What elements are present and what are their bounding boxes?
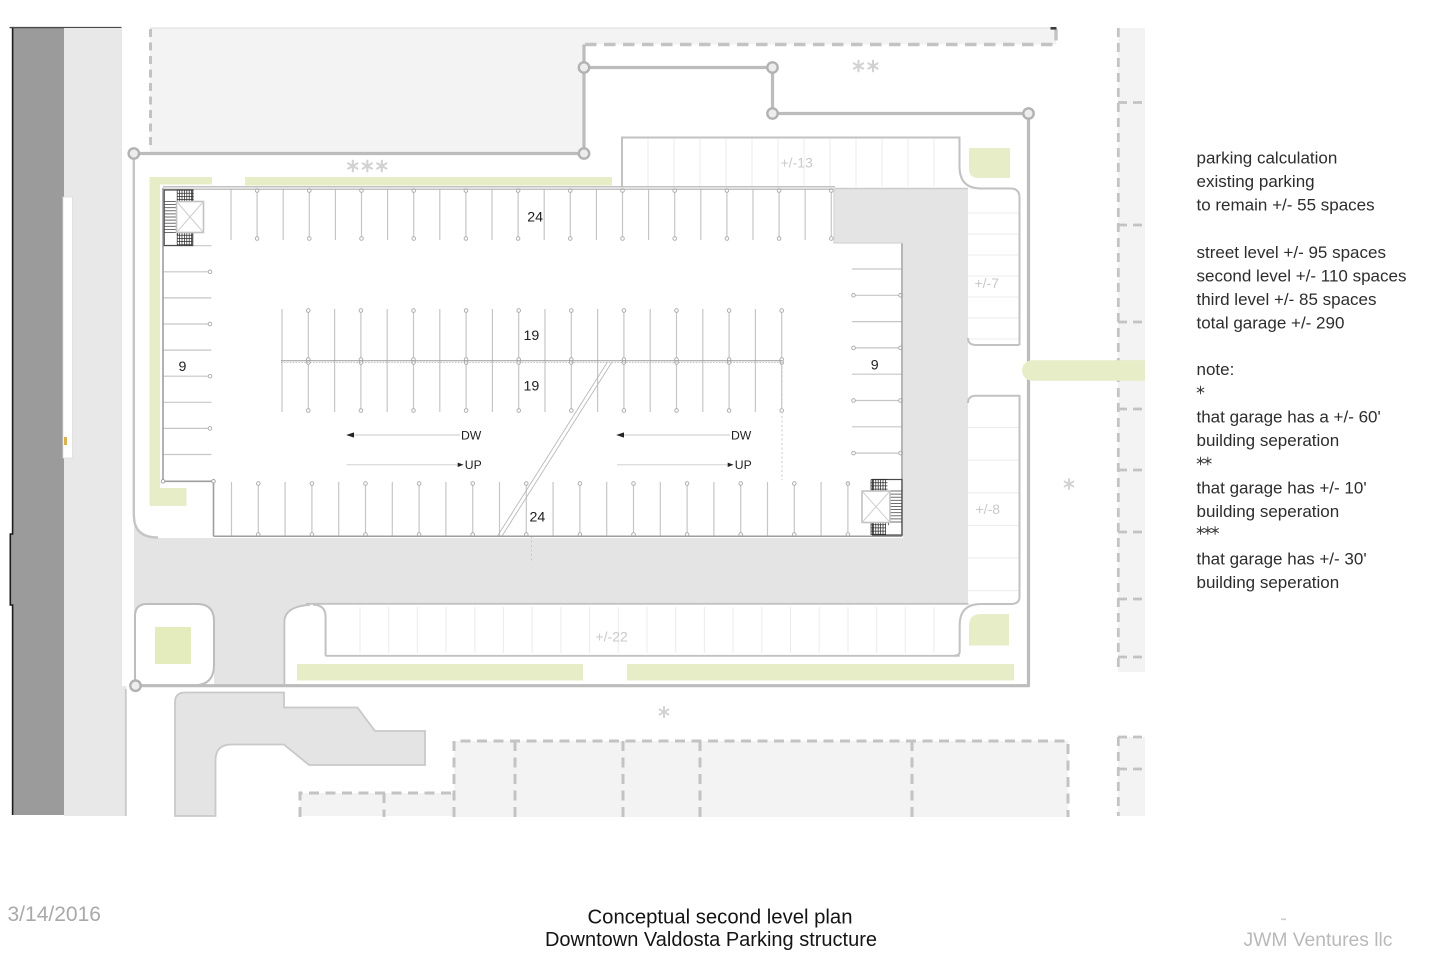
svg-text:Conceptual second level plan: Conceptual second level plan	[588, 907, 853, 929]
svg-text:UP: UP	[735, 458, 752, 472]
svg-text:+/-22: +/-22	[596, 629, 629, 645]
svg-text:JWM Ventures llc: JWM Ventures llc	[1244, 930, 1393, 951]
svg-text:parking calculation: parking calculation	[1197, 149, 1338, 168]
svg-text:that garage has a +/- 60': that garage has a +/- 60'	[1197, 408, 1381, 427]
svg-text:total garage +/- 290: total garage +/- 290	[1197, 314, 1345, 333]
svg-text:to remain +/- 55 spaces: to remain +/- 55 spaces	[1197, 196, 1375, 215]
svg-text:UP: UP	[465, 458, 482, 472]
svg-text:note:: note:	[1197, 360, 1235, 379]
svg-text:second level +/- 110 spaces: second level +/- 110 spaces	[1197, 267, 1407, 286]
svg-text:24: 24	[527, 209, 543, 225]
svg-text:19: 19	[524, 378, 540, 394]
svg-text:that garage has +/- 30': that garage has +/- 30'	[1197, 550, 1367, 569]
svg-text:3/14/2016: 3/14/2016	[8, 903, 101, 926]
svg-text:building seperation: building seperation	[1197, 502, 1340, 521]
svg-text:that garage has +/- 10': that garage has +/- 10'	[1197, 479, 1367, 498]
svg-text:DW: DW	[731, 428, 752, 442]
svg-text:9: 9	[179, 359, 187, 375]
svg-text:9: 9	[871, 358, 879, 374]
svg-text:+/-13: +/-13	[781, 155, 814, 171]
svg-text:Downtown Valdosta Parking stru: Downtown Valdosta Parking structure	[545, 929, 877, 951]
svg-text:24: 24	[530, 509, 546, 525]
svg-text:third level +/- 85 spaces: third level +/- 85 spaces	[1197, 290, 1377, 309]
svg-text:+/-8: +/-8	[976, 501, 1001, 517]
svg-text:building seperation: building seperation	[1197, 573, 1340, 592]
svg-text:building seperation: building seperation	[1197, 431, 1340, 450]
svg-text:existing parking: existing parking	[1197, 172, 1315, 191]
svg-text:street level +/- 95 spaces: street level +/- 95 spaces	[1197, 243, 1386, 262]
svg-text:19: 19	[524, 328, 540, 344]
svg-text:DW: DW	[461, 428, 482, 442]
svg-text:+/-7: +/-7	[975, 275, 1000, 291]
